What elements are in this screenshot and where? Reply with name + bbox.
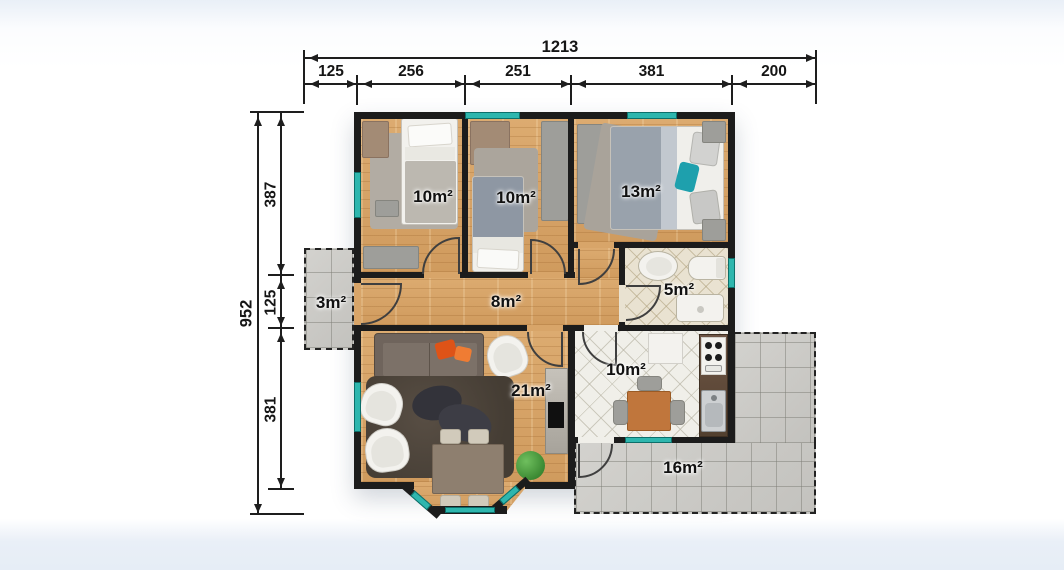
room-label-hallway: 8m² — [481, 293, 531, 311]
room-label-bedroom-1: 10m² — [403, 188, 463, 206]
door-arc — [423, 238, 459, 274]
door-arc — [579, 444, 612, 477]
room-label-bedroom-3: 13m² — [611, 183, 671, 201]
door-swing-arcs — [0, 0, 1064, 570]
room-label-terrace: 16m² — [648, 459, 718, 477]
room-label-bathroom: 5m² — [654, 281, 704, 299]
room-label-kitchen: 10m² — [596, 361, 656, 379]
door-arc — [579, 249, 614, 284]
door-arc — [528, 332, 562, 366]
room-label-porch: 3m² — [306, 294, 356, 312]
room-label-living-room: 21m² — [496, 382, 566, 400]
door-arc — [531, 240, 565, 274]
room-label-bedroom-2: 10m² — [486, 189, 546, 207]
floor-plan-canvas: 1213 125 256 251 381 200 952 387 125 381 — [0, 0, 1064, 570]
door-arc — [361, 284, 401, 324]
